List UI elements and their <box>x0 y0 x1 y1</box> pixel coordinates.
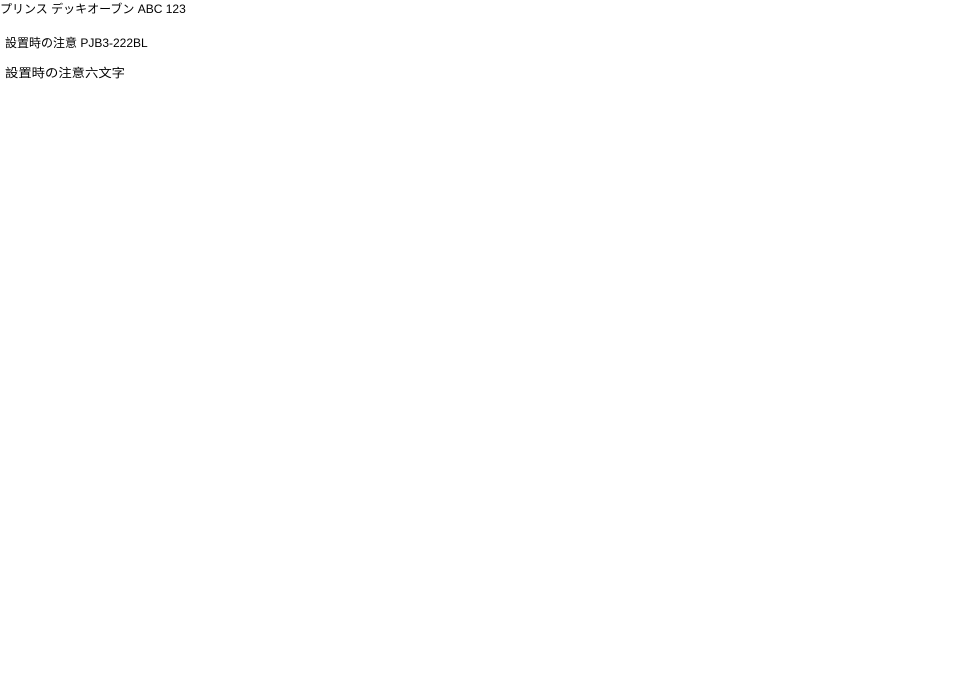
svg-text:設置時の注意六文字: 設置時の注意六文字 <box>5 65 125 80</box>
svg-text:設置時の注意 PJB3-222BL: 設置時の注意 PJB3-222BL <box>5 35 148 50</box>
